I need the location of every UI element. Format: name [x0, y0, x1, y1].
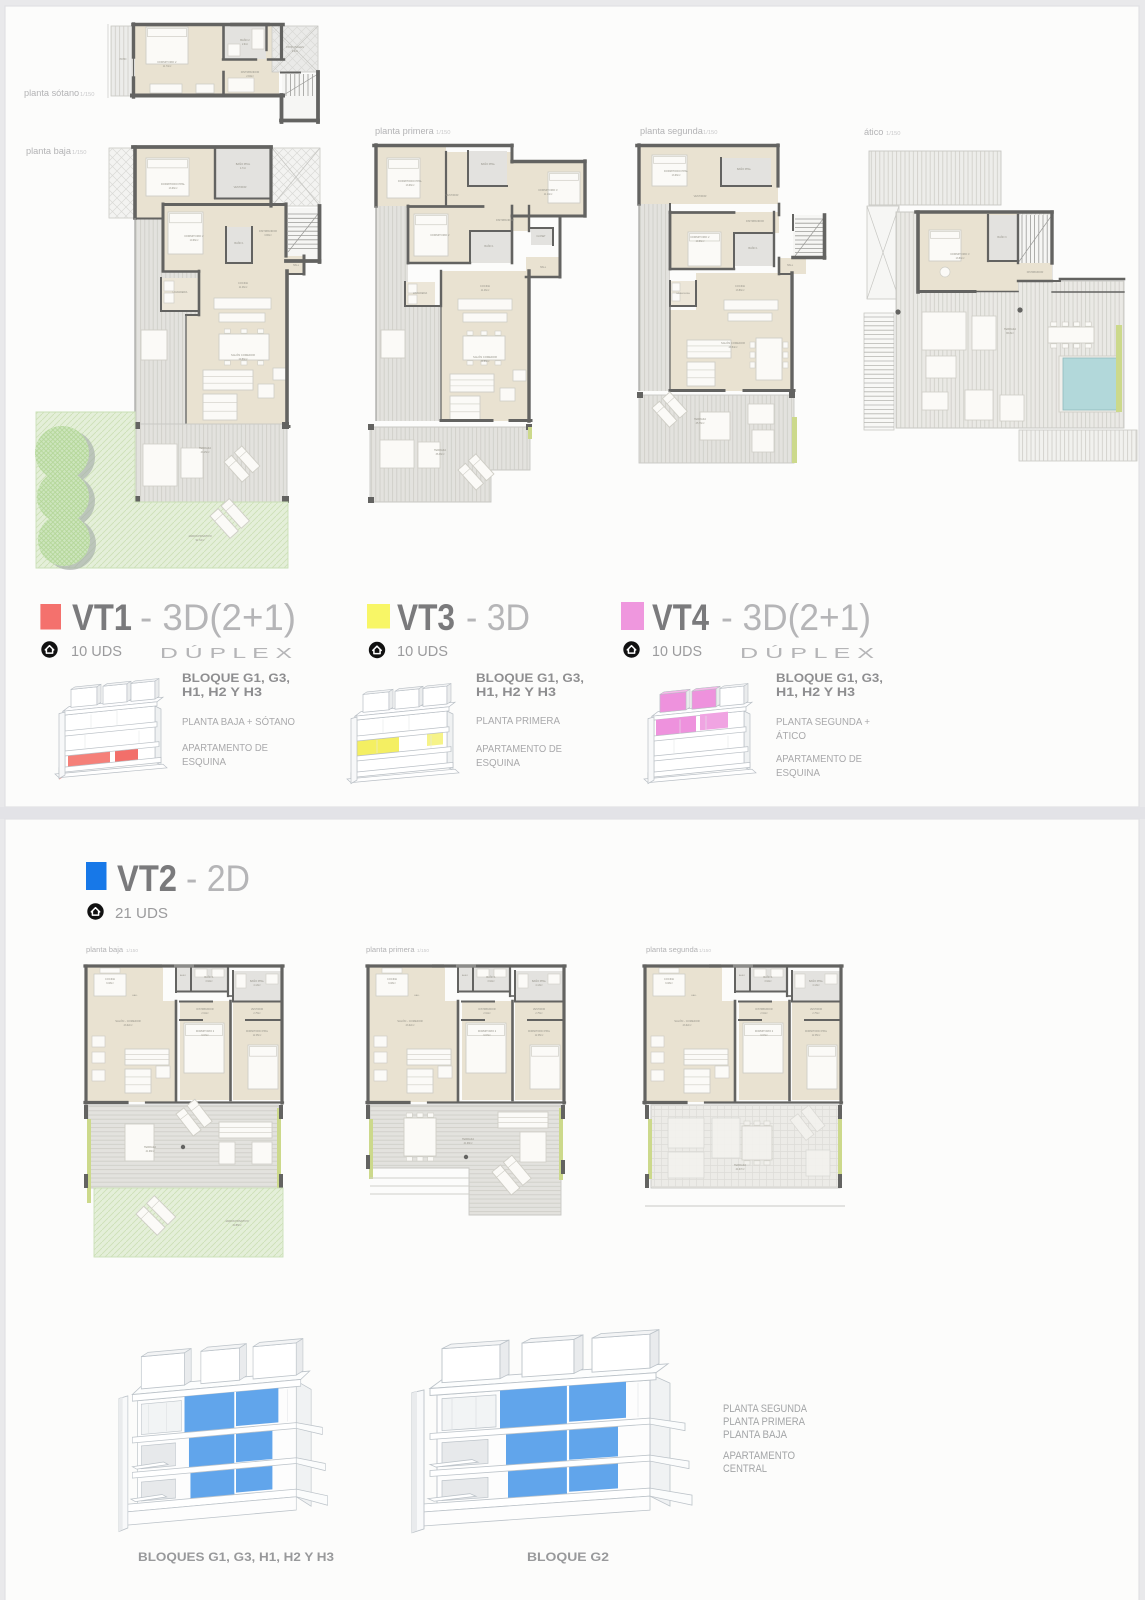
svg-text:PATIO: PATIO	[120, 58, 127, 61]
svg-text:DORMITORIO PPAL: DORMITORIO PPAL	[398, 179, 423, 183]
svg-text:DISTRIBUIDOR: DISTRIBUIDOR	[478, 1008, 495, 1011]
svg-text:DORMITORIO 2: DORMITORIO 2	[431, 233, 451, 237]
svg-text:29.86m²: 29.86m²	[239, 358, 248, 361]
svg-text:HALL: HALL	[787, 264, 794, 267]
svg-text:ESQUINA: ESQUINA	[476, 757, 520, 769]
svg-text:BLOQUE G1, G3,: BLOQUE G1, G3,	[476, 671, 584, 685]
svg-text:planta segunda: planta segunda	[646, 945, 699, 954]
svg-text:H1, H2 Y H3: H1, H2 Y H3	[476, 685, 556, 699]
svg-text:- 3D: - 3D	[466, 597, 530, 638]
svg-text:2.75m²: 2.75m²	[812, 1012, 819, 1015]
svg-text:BLOQUE G1, G3,: BLOQUE G1, G3,	[182, 671, 290, 685]
svg-text:TERRAZA: TERRAZA	[144, 1145, 156, 1149]
svg-text:PLANTA SEGUNDA: PLANTA SEGUNDA	[723, 1403, 808, 1415]
svg-text:COCINA: COCINA	[238, 281, 248, 285]
svg-text:HALL: HALL	[691, 994, 697, 997]
svg-text:LAVANDERIA: LAVANDERIA	[676, 292, 690, 295]
svg-text:D Ú P L E X: D Ú P L E X	[160, 645, 293, 662]
svg-text:BLOQUE G1, G3,: BLOQUE G1, G3,	[776, 671, 883, 685]
svg-text:- 2D: - 2D	[186, 858, 250, 899]
svg-text:BAÑO 1: BAÑO 1	[204, 976, 214, 979]
svg-text:3.86m²: 3.86m²	[264, 234, 272, 237]
svg-text:9.97m²: 9.97m²	[201, 1034, 208, 1037]
svg-text:29.86m²: 29.86m²	[481, 360, 490, 363]
svg-text:2.91m²: 2.91m²	[760, 1012, 767, 1015]
svg-text:PLANTA BAJA: PLANTA BAJA	[723, 1429, 788, 1441]
svg-text:BAÑO 1: BAÑO 1	[763, 976, 773, 979]
svg-text:ASEO: ASEO	[180, 974, 186, 977]
svg-text:DORMITORIO PPAL: DORMITORIO PPAL	[664, 169, 689, 173]
svg-text:APARTAMENTO DE: APARTAMENTO DE	[476, 743, 562, 755]
svg-text:PLANTA BAJA + SÓTANO: PLANTA BAJA + SÓTANO	[182, 715, 295, 728]
svg-text:TERRAZA: TERRAZA	[462, 1137, 474, 1141]
svg-text:2.84m²: 2.84m²	[246, 75, 254, 78]
svg-text:ASEO: ASEO	[462, 974, 468, 977]
svg-text:12.95m²: 12.95m²	[253, 1034, 262, 1037]
svg-text:BAÑO PPAL: BAÑO PPAL	[532, 980, 547, 983]
svg-text:VESTIDOR: VESTIDOR	[446, 194, 459, 197]
svg-text:BAÑO 1: BAÑO 1	[486, 976, 496, 979]
svg-text:DORMITORIO 2: DORMITORIO 2	[185, 234, 205, 238]
svg-text:TERRAZA: TERRAZA	[1004, 327, 1016, 331]
svg-text:BLOQUE G2: BLOQUE G2	[527, 1550, 609, 1564]
svg-text:ESQUINA: ESQUINA	[776, 767, 820, 779]
svg-text:DORMITORIO 2: DORMITORIO 2	[478, 1030, 497, 1033]
svg-text:36.36m²: 36.36m²	[436, 453, 445, 456]
svg-text:1/150: 1/150	[72, 150, 87, 156]
svg-text:COCINA: COCINA	[480, 284, 490, 288]
svg-text:2.9m²: 2.9m²	[242, 43, 248, 46]
svg-text:10.96m²: 10.96m²	[190, 239, 199, 242]
svg-text:BAÑO PPAL: BAÑO PPAL	[481, 163, 496, 166]
svg-text:- 3D(2+1): - 3D(2+1)	[140, 597, 296, 638]
svg-text:APARTAMENTO DE: APARTAMENTO DE	[182, 742, 268, 754]
svg-text:13.86m²: 13.86m²	[736, 289, 745, 292]
svg-text:DISTRIBUIDOR: DISTRIBUIDOR	[755, 1008, 772, 1011]
svg-text:planta segunda: planta segunda	[640, 126, 704, 136]
svg-text:11.46m²: 11.46m²	[239, 286, 248, 289]
svg-text:planta baja: planta baja	[86, 945, 124, 954]
svg-text:9.97m²: 9.97m²	[760, 1034, 767, 1037]
svg-text:- 3D(2+1): - 3D(2+1)	[721, 597, 871, 638]
svg-text:1/150: 1/150	[699, 948, 711, 954]
svg-text:APARTAMENTO DE: APARTAMENTO DE	[776, 753, 862, 765]
svg-text:91.72m²: 91.72m²	[196, 539, 205, 542]
svg-text:DISTRIBUIDOR: DISTRIBUIDOR	[259, 230, 277, 233]
svg-text:DORMITORIO 3: DORMITORIO 3	[951, 252, 971, 256]
svg-text:CLOSET: CLOSET	[536, 236, 546, 238]
svg-text:12.95m²: 12.95m²	[812, 1034, 821, 1037]
svg-text:9.97m²: 9.97m²	[483, 1034, 490, 1037]
svg-text:PLANTA PRIMERA: PLANTA PRIMERA	[723, 1416, 806, 1428]
svg-text:DISTRIBUIDOR: DISTRIBUIDOR	[746, 220, 764, 223]
svg-text:BAÑO PPAL: BAÑO PPAL	[809, 980, 824, 983]
svg-text:JARDIN PRIVATIVO: JARDIN PRIVATIVO	[225, 1219, 249, 1223]
svg-text:1/150: 1/150	[417, 948, 429, 954]
svg-text:DISTRIBUIDOR: DISTRIBUIDOR	[1027, 272, 1044, 274]
svg-text:HALL: HALL	[540, 266, 547, 269]
svg-text:2.91m²: 2.91m²	[483, 1012, 490, 1015]
svg-text:11.46m²: 11.46m²	[481, 289, 490, 292]
svg-text:86.8m²: 86.8m²	[1006, 332, 1014, 335]
svg-text:TERRAZA: TERRAZA	[694, 417, 706, 421]
svg-text:29.84m²: 29.84m²	[729, 346, 738, 349]
svg-text:planta baja: planta baja	[26, 146, 72, 156]
svg-text:1/150: 1/150	[126, 948, 138, 954]
svg-text:3.94m²: 3.94m²	[205, 980, 212, 983]
svg-text:9.08m²: 9.08m²	[106, 982, 114, 985]
svg-text:9.08m²: 9.08m²	[388, 982, 396, 985]
svg-text:10 UDS: 10 UDS	[71, 643, 122, 660]
svg-text:HALL: HALL	[132, 994, 138, 997]
svg-text:1/150: 1/150	[703, 130, 718, 136]
svg-text:VT3: VT3	[397, 597, 455, 638]
svg-text:13.96m²: 13.96m²	[406, 184, 415, 187]
svg-text:13.96m²: 13.96m²	[672, 174, 681, 177]
svg-text:DORMITORIO PPAL: DORMITORIO PPAL	[161, 182, 186, 186]
svg-text:20.85m²: 20.85m²	[233, 1224, 242, 1227]
svg-text:ESQUINA: ESQUINA	[182, 756, 226, 768]
svg-text:13.96m²: 13.96m²	[169, 187, 178, 190]
svg-text:ÁTICO: ÁTICO	[776, 729, 806, 742]
svg-text:DORMITORIO PPAL: DORMITORIO PPAL	[246, 1030, 269, 1033]
svg-text:DORMITORIO PPAL: DORMITORIO PPAL	[528, 1030, 551, 1033]
svg-text:HALL: HALL	[293, 264, 300, 267]
svg-text:41.98m²: 41.98m²	[146, 1150, 155, 1153]
svg-text:41.97m²: 41.97m²	[736, 1168, 745, 1171]
svg-text:9.08m²: 9.08m²	[665, 982, 673, 985]
svg-text:planta primera: planta primera	[366, 945, 415, 954]
svg-text:DORMITORIO 2: DORMITORIO 2	[755, 1030, 774, 1033]
svg-text:VESTIDOR: VESTIDOR	[533, 1008, 545, 1011]
svg-text:DORMITORIO 3: DORMITORIO 3	[539, 188, 559, 192]
svg-text:11.14m²: 11.14m²	[544, 193, 553, 196]
svg-text:1/150: 1/150	[886, 131, 901, 137]
svg-text:21 UDS: 21 UDS	[115, 905, 168, 922]
svg-text:LAVANDERIA: LAVANDERIA	[173, 291, 188, 294]
svg-text:23.92m²: 23.92m²	[406, 1024, 415, 1027]
svg-text:4.3m²: 4.3m²	[292, 50, 298, 53]
svg-text:VESTIDOR: VESTIDOR	[251, 1008, 263, 1011]
svg-text:10 UDS: 10 UDS	[397, 643, 448, 660]
svg-text:PLANTA SEGUNDA +: PLANTA SEGUNDA +	[776, 716, 870, 728]
svg-text:3.94m²: 3.94m²	[487, 980, 494, 983]
svg-text:BAÑO 1: BAÑO 1	[748, 247, 758, 250]
svg-text:BLOQUES G1, G3, H1, H2 Y H3: BLOQUES G1, G3, H1, H2 Y H3	[138, 1550, 334, 1564]
svg-text:planta primera: planta primera	[375, 126, 435, 136]
svg-text:VT4: VT4	[652, 597, 709, 638]
svg-text:VESTIDOR: VESTIDOR	[234, 186, 247, 189]
svg-text:ASEO: ASEO	[739, 974, 745, 977]
svg-text:DORMITORIO 2: DORMITORIO 2	[196, 1030, 215, 1033]
svg-text:COCINA: COCINA	[735, 284, 745, 288]
svg-text:1/150: 1/150	[436, 130, 451, 136]
svg-text:DISTRIBUIDOR: DISTRIBUIDOR	[196, 1008, 213, 1011]
svg-text:COCINA: COCINA	[664, 977, 674, 981]
svg-text:DISTRIBUIDOR: DISTRIBUIDOR	[241, 70, 260, 74]
svg-text:ático: ático	[864, 127, 883, 137]
svg-text:41.98m²: 41.98m²	[464, 1142, 473, 1145]
svg-text:DORMITORIO 2: DORMITORIO 2	[158, 60, 178, 64]
svg-text:4.13m²: 4.13m²	[253, 984, 260, 987]
svg-text:CENTRAL: CENTRAL	[723, 1463, 767, 1475]
svg-text:planta sótano: planta sótano	[24, 88, 79, 98]
svg-text:VT1: VT1	[72, 597, 132, 638]
svg-text:VESTIDOR: VESTIDOR	[810, 1008, 822, 1011]
svg-text:BAÑO 1: BAÑO 1	[234, 242, 244, 245]
svg-text:H1, H2 Y H3: H1, H2 Y H3	[182, 685, 262, 699]
svg-text:43.15m²: 43.15m²	[201, 451, 210, 454]
svg-text:DORMITORIO 2: DORMITORIO 2	[691, 235, 711, 239]
svg-text:BAÑO 3: BAÑO 3	[997, 236, 1007, 239]
svg-text:13.86m²: 13.86m²	[956, 257, 965, 260]
svg-text:H1, H2 Y H3: H1, H2 Y H3	[776, 685, 855, 699]
svg-text:VESTIDOR: VESTIDOR	[694, 195, 707, 198]
svg-text:BAÑO 1: BAÑO 1	[484, 245, 494, 248]
svg-text:11.74m²: 11.74m²	[163, 65, 172, 68]
svg-text:DORMITORIO PPAL: DORMITORIO PPAL	[805, 1030, 828, 1033]
svg-text:BAÑO PPAL: BAÑO PPAL	[250, 980, 265, 983]
svg-text:10 UDS: 10 UDS	[652, 643, 702, 660]
svg-text:TERRAZA: TERRAZA	[199, 446, 211, 450]
svg-text:PLANTA PRIMERA: PLANTA PRIMERA	[476, 715, 560, 727]
svg-text:DISTRIBUIDOR: DISTRIBUIDOR	[496, 219, 514, 222]
svg-text:4.13m²: 4.13m²	[535, 984, 542, 987]
svg-text:HALL: HALL	[414, 994, 420, 997]
svg-text:2.75m²: 2.75m²	[535, 1012, 542, 1015]
svg-text:PATIO INGLES: PATIO INGLES	[286, 45, 304, 49]
svg-text:4.13m²: 4.13m²	[812, 984, 819, 987]
svg-text:APARTAMENTO: APARTAMENTO	[723, 1450, 795, 1462]
svg-text:2.91m²: 2.91m²	[201, 1012, 208, 1015]
svg-text:12.95m²: 12.95m²	[535, 1034, 544, 1037]
svg-text:23.92m²: 23.92m²	[683, 1024, 692, 1027]
svg-text:10.96m²: 10.96m²	[696, 240, 705, 243]
svg-text:BAÑO PPAL: BAÑO PPAL	[737, 168, 752, 171]
svg-text:D Ú P L E X: D Ú P L E X	[740, 645, 875, 662]
svg-text:4.7m²: 4.7m²	[240, 167, 246, 170]
svg-text:TERRAZA: TERRAZA	[734, 1163, 746, 1167]
svg-text:2.75m²: 2.75m²	[253, 1012, 260, 1015]
svg-text:COCINA: COCINA	[105, 977, 115, 981]
svg-text:45.76m²: 45.76m²	[696, 422, 705, 425]
svg-text:VT2: VT2	[117, 858, 177, 899]
svg-text:23.92m²: 23.92m²	[124, 1024, 133, 1027]
svg-text:1/150: 1/150	[80, 92, 95, 98]
svg-text:COCINA: COCINA	[387, 977, 397, 981]
svg-text:3.94m²: 3.94m²	[764, 980, 771, 983]
svg-text:JARDIN PRIVATIVO: JARDIN PRIVATIVO	[188, 534, 212, 538]
svg-text:LAVANDERIA: LAVANDERIA	[413, 292, 428, 295]
svg-text:TERRAZA: TERRAZA	[434, 448, 446, 452]
